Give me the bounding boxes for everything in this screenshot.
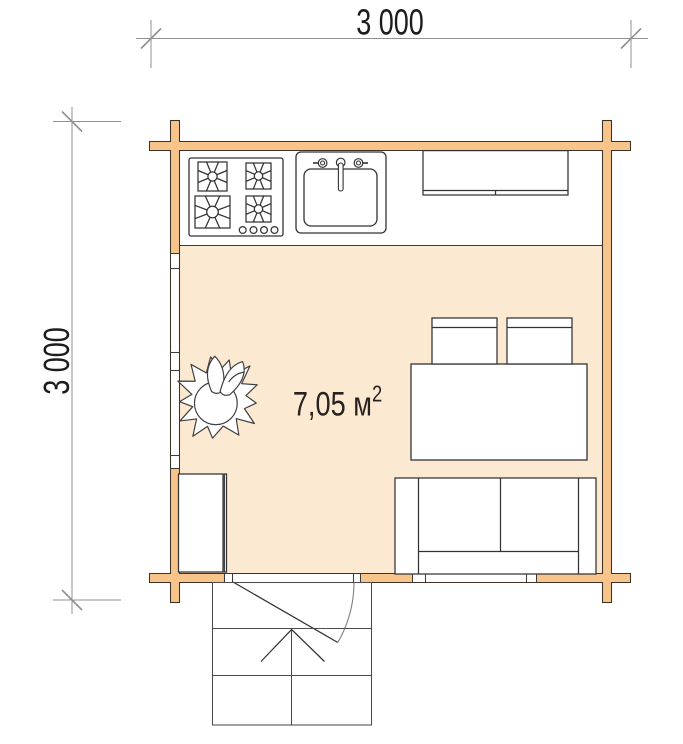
svg-text:3 000: 3 000 [36, 327, 77, 395]
svg-text:3 000: 3 000 [356, 2, 424, 43]
svg-text:7,05 м2: 7,05 м2 [293, 382, 382, 424]
